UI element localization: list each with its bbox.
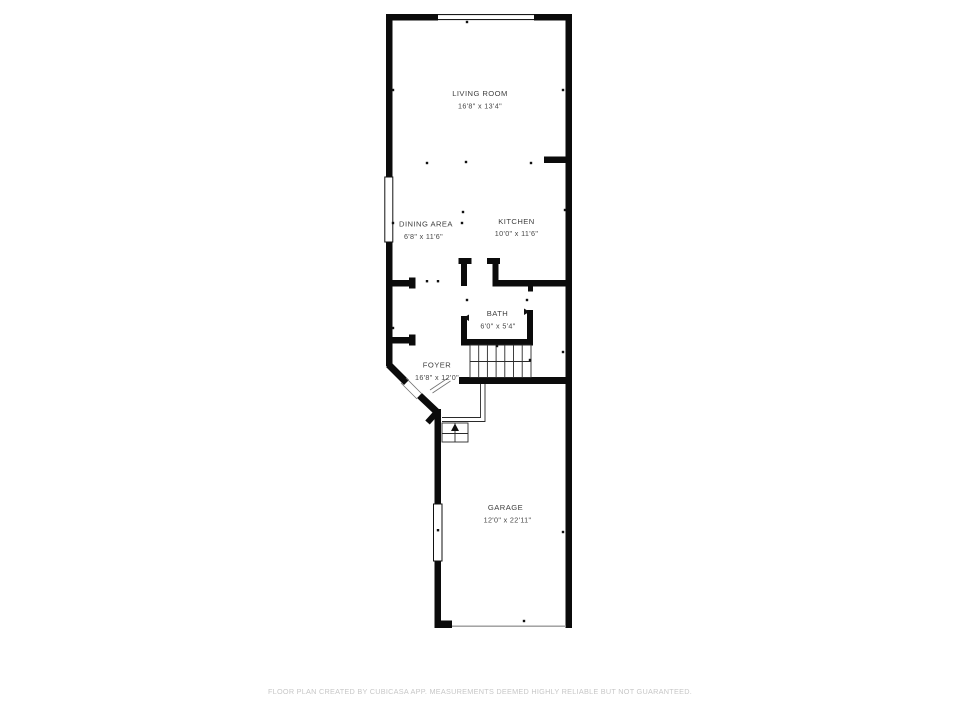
room-name: KITCHEN bbox=[498, 217, 534, 226]
dot bbox=[496, 345, 498, 347]
room-label-bath: BATH 6'0" x 5'4" bbox=[480, 309, 515, 331]
dot bbox=[529, 359, 531, 361]
room-dimensions: 16'8" x 12'0" bbox=[415, 373, 459, 382]
wall-segment-foyer-angle-upper bbox=[389, 365, 407, 383]
garage-overhead-door-line bbox=[452, 626, 566, 627]
room-name: LIVING ROOM bbox=[452, 89, 508, 98]
floor-plan-image: LIVING ROOM 16'8" x 13'4" DINING AREA 6'… bbox=[0, 0, 960, 720]
floor-plan-drawing: LIVING ROOM 16'8" x 13'4" DINING AREA 6'… bbox=[0, 0, 960, 720]
window-frame-line bbox=[438, 14, 534, 15]
room-label-living-room: LIVING ROOM 16'8" x 13'4" bbox=[452, 89, 508, 111]
dot bbox=[530, 162, 532, 164]
room-label-garage: GARAGE 12'0" x 22'11" bbox=[484, 503, 532, 525]
dot bbox=[437, 280, 439, 282]
wall-cap bbox=[487, 258, 500, 264]
room-name: FOYER bbox=[423, 361, 451, 370]
wall-segment-living-kitchen-stub bbox=[544, 157, 566, 164]
wall-door-tick bbox=[528, 287, 533, 292]
room-labels: LIVING ROOM 16'8" x 13'4" DINING AREA 6'… bbox=[399, 89, 538, 525]
dot bbox=[466, 21, 468, 23]
void-line-outer bbox=[442, 384, 485, 422]
wall-cap bbox=[459, 258, 472, 264]
room-dimensions: 10'0" x 11'6" bbox=[495, 229, 539, 238]
dot bbox=[523, 620, 525, 622]
window-symbol-living-top bbox=[438, 14, 534, 20]
dot bbox=[562, 531, 564, 533]
wall-segment-kitchen-bottom bbox=[493, 280, 573, 287]
room-name: GARAGE bbox=[488, 503, 523, 512]
room-name: DINING AREA bbox=[399, 220, 453, 229]
wall-segment-top-left bbox=[386, 14, 438, 21]
dot bbox=[466, 299, 468, 301]
stair-direction-arrow-icon bbox=[451, 424, 459, 432]
dot bbox=[426, 162, 428, 164]
dot bbox=[437, 529, 439, 531]
void-line-inner bbox=[442, 384, 481, 418]
room-label-foyer: FOYER 16'8" x 12'0" bbox=[415, 361, 459, 383]
room-dimensions: 6'0" x 5'4" bbox=[480, 322, 515, 331]
room-label-kitchen: KITCHEN 10'0" x 11'6" bbox=[495, 217, 539, 238]
dot bbox=[392, 222, 394, 224]
dot bbox=[392, 89, 394, 91]
footer-disclaimer-text: FLOOR PLAN CREATED BY CUBICASA APP. MEAS… bbox=[0, 687, 960, 696]
dot bbox=[392, 327, 394, 329]
window-symbol-dining bbox=[385, 177, 393, 242]
room-name: BATH bbox=[487, 309, 509, 318]
wall-dots bbox=[392, 21, 566, 622]
wall-cap bbox=[409, 335, 416, 346]
door-openings bbox=[401, 378, 566, 627]
stair-void-outline bbox=[442, 384, 485, 422]
window-glass bbox=[438, 15, 534, 19]
dot bbox=[526, 299, 528, 301]
dot bbox=[564, 209, 566, 211]
dot bbox=[462, 211, 464, 213]
wall-segment-right bbox=[566, 14, 573, 628]
front-door-threshold bbox=[401, 383, 417, 399]
dot bbox=[465, 161, 467, 163]
room-dimensions: 12'0" x 22'11" bbox=[484, 516, 532, 525]
dot bbox=[562, 351, 564, 353]
wall-segment-garage-bottom-stub bbox=[435, 621, 453, 629]
staircase-main bbox=[470, 345, 531, 378]
window-frame-line bbox=[438, 19, 534, 20]
wall-segment-bath-bottom bbox=[461, 339, 533, 346]
dot bbox=[562, 89, 564, 91]
window-symbol-garage bbox=[434, 504, 443, 561]
wall-cap bbox=[409, 278, 416, 289]
room-dimensions: 16'8" x 13'4" bbox=[458, 102, 502, 111]
entry-steps bbox=[442, 423, 468, 442]
dot bbox=[461, 222, 463, 224]
room-dimensions: 6'8" x 11'6" bbox=[404, 232, 443, 241]
dot bbox=[426, 280, 428, 282]
wall-segment-foyer-bottom bbox=[459, 377, 572, 384]
room-label-dining-area: DINING AREA 6'8" x 11'6" bbox=[399, 220, 453, 242]
